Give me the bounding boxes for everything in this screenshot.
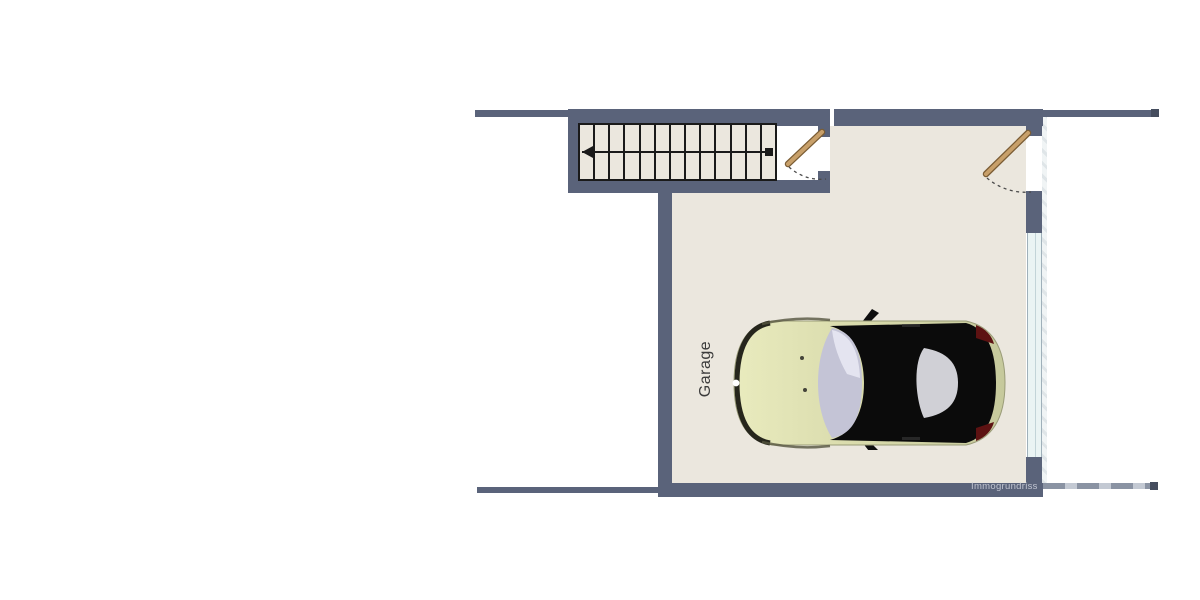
door-leaf bbox=[788, 132, 822, 164]
wall-end-cap-bottom-right bbox=[1150, 482, 1158, 490]
exterior-wall-line-top-right bbox=[1043, 110, 1159, 117]
exterior-face-line-right bbox=[1042, 117, 1047, 483]
garage-right-wall-mid bbox=[1026, 191, 1042, 233]
stair-direction-arrow-icon bbox=[582, 146, 593, 158]
garage-room-label: Garage bbox=[696, 327, 716, 411]
garage-floor bbox=[672, 192, 1026, 483]
watermark-label: Immogrundriss bbox=[971, 481, 1043, 494]
exterior-wall-line-bottom-right bbox=[1043, 483, 1158, 489]
garage-floor-entry-notch bbox=[830, 126, 1026, 192]
garage-right-wall-top bbox=[1026, 109, 1042, 136]
staircase bbox=[578, 123, 777, 181]
exterior-wall-line-bottom-left bbox=[477, 487, 658, 493]
wall-end-cap-top-right bbox=[1151, 109, 1159, 117]
staircase-bottom-wall bbox=[568, 180, 830, 193]
garage-left-wall bbox=[658, 180, 672, 497]
stair-direction-start-marker bbox=[765, 148, 773, 156]
exterior-wall-line-top-left bbox=[475, 110, 568, 117]
garage-window bbox=[1027, 233, 1042, 457]
floor-plan: Garage Immogrundriss bbox=[0, 0, 1200, 600]
door-leaf-edge bbox=[788, 132, 822, 164]
door-jamb-top-left-door bbox=[818, 109, 830, 137]
window-pane-line bbox=[1035, 233, 1036, 457]
stair-direction-line bbox=[582, 151, 773, 153]
door-jamb-bottom-left-door bbox=[818, 171, 830, 193]
